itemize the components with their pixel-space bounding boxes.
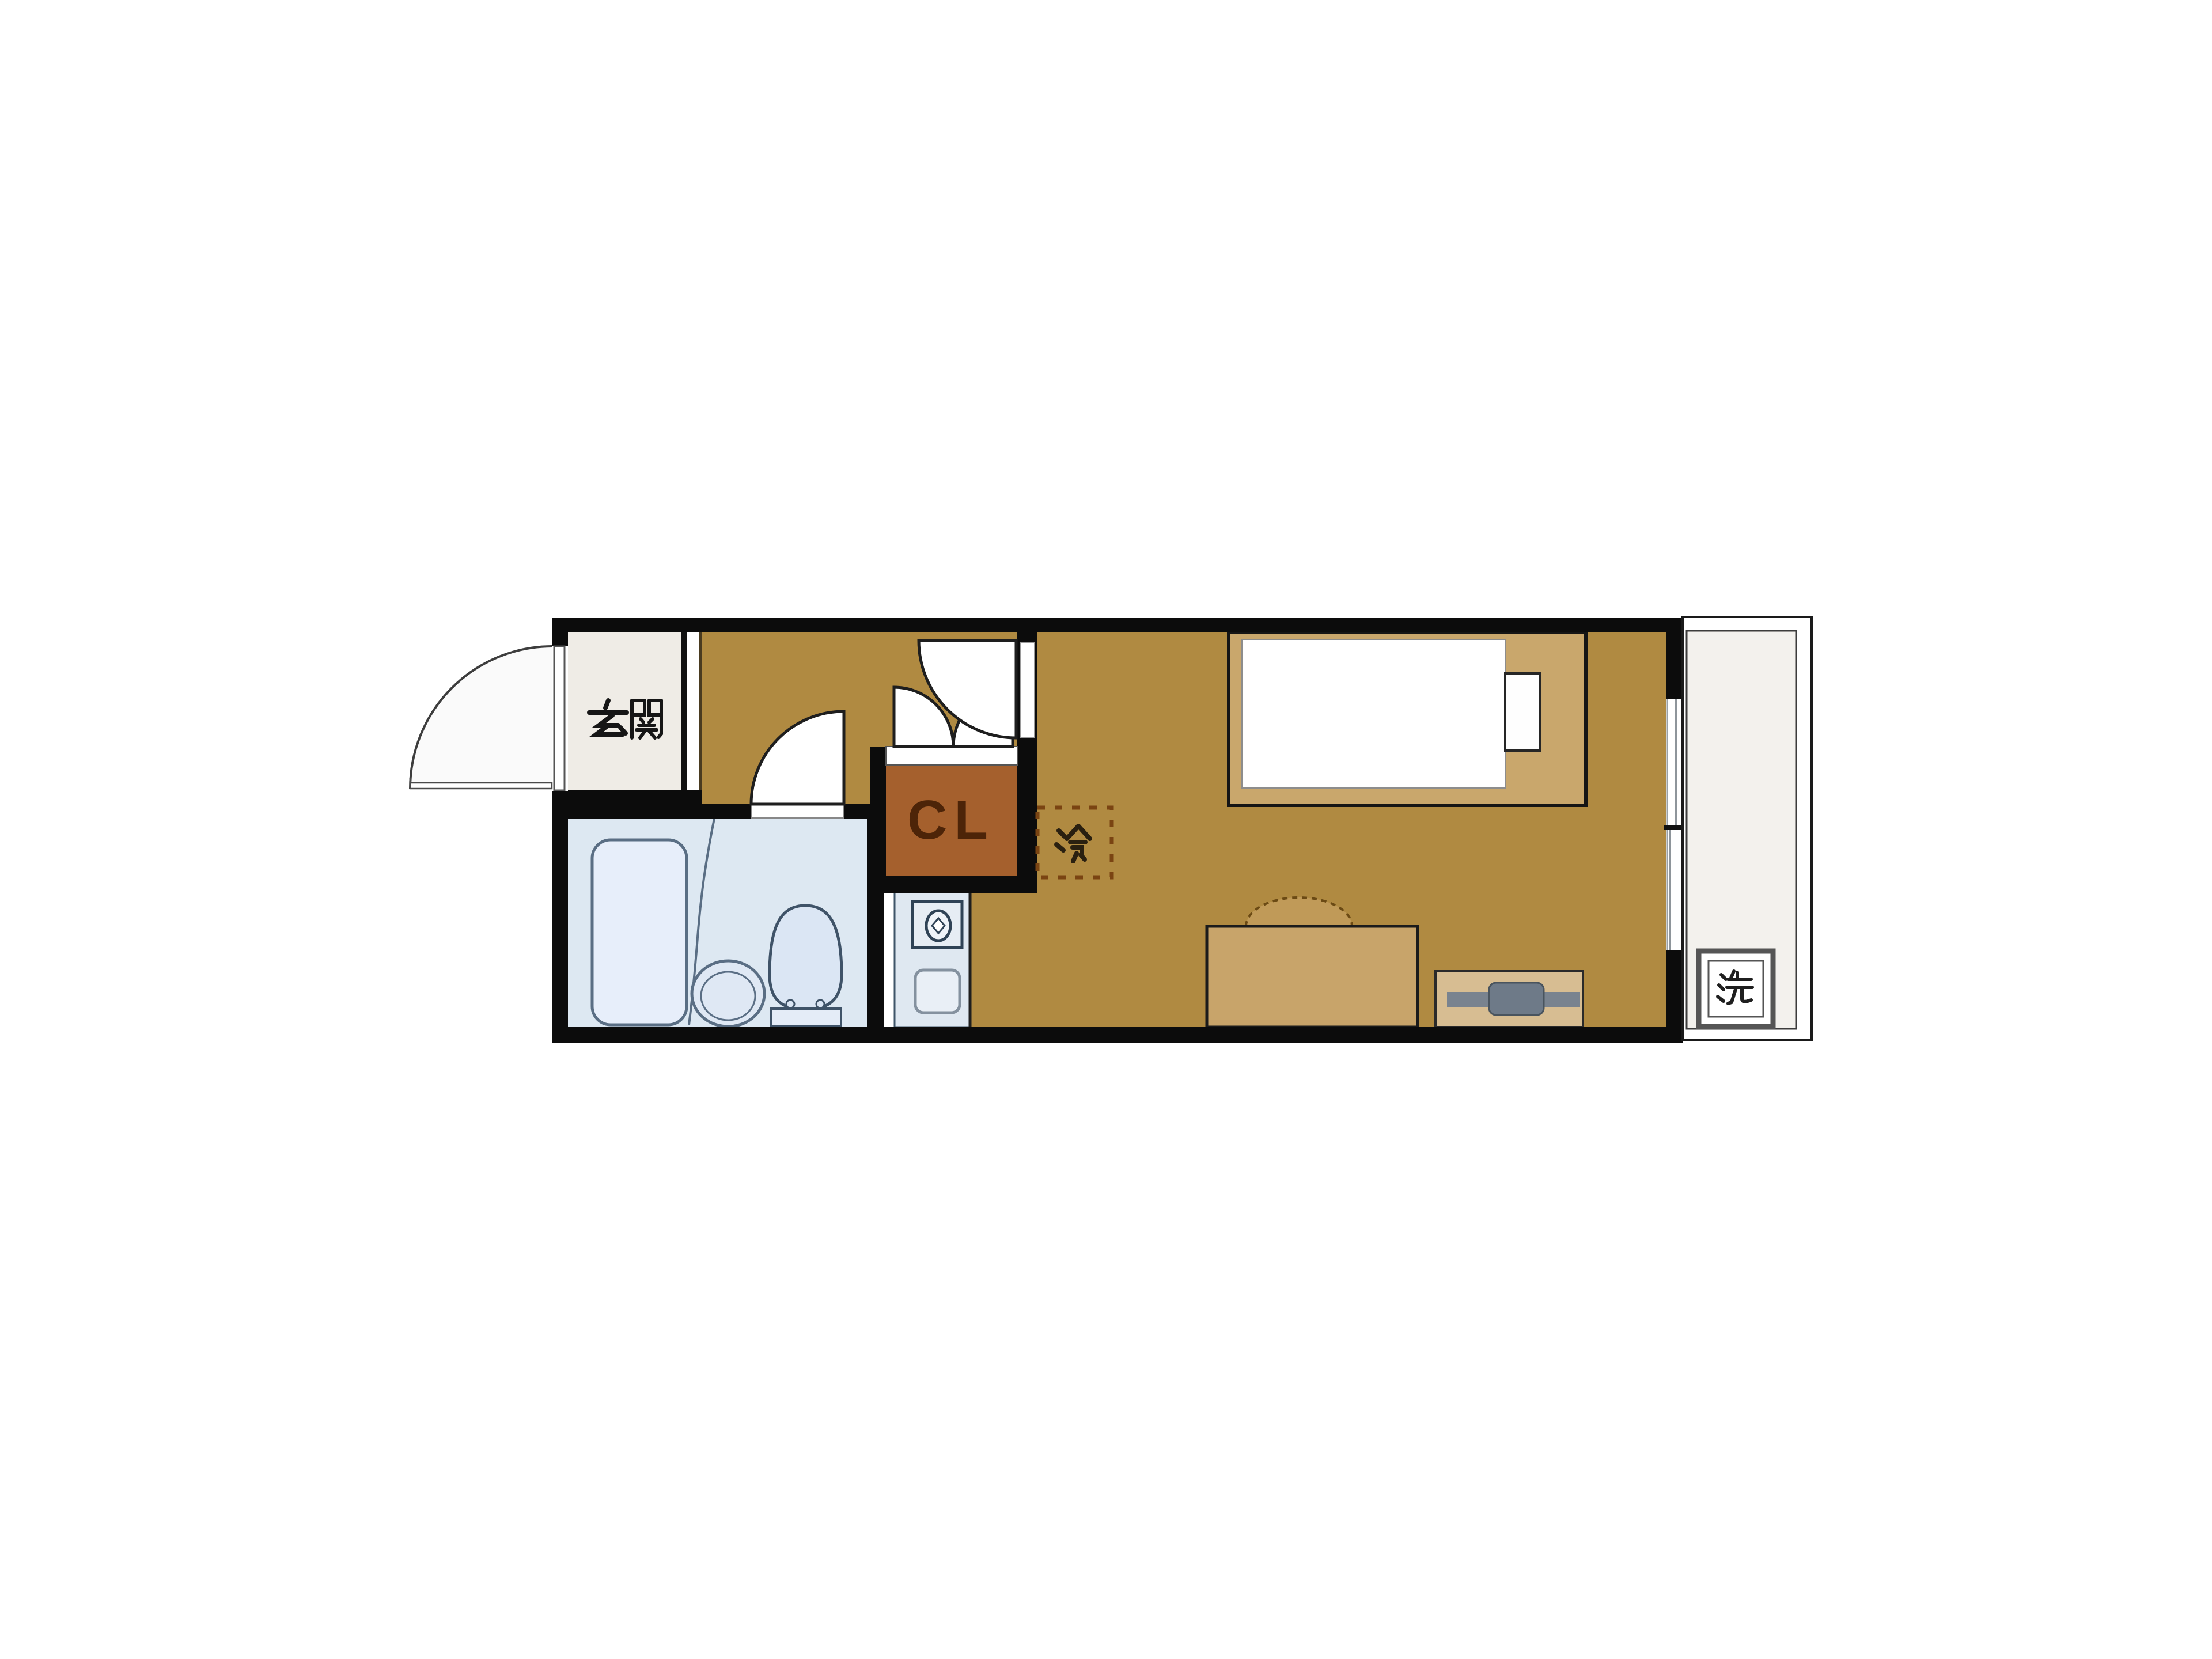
svg-text:CL: CL bbox=[907, 789, 995, 851]
